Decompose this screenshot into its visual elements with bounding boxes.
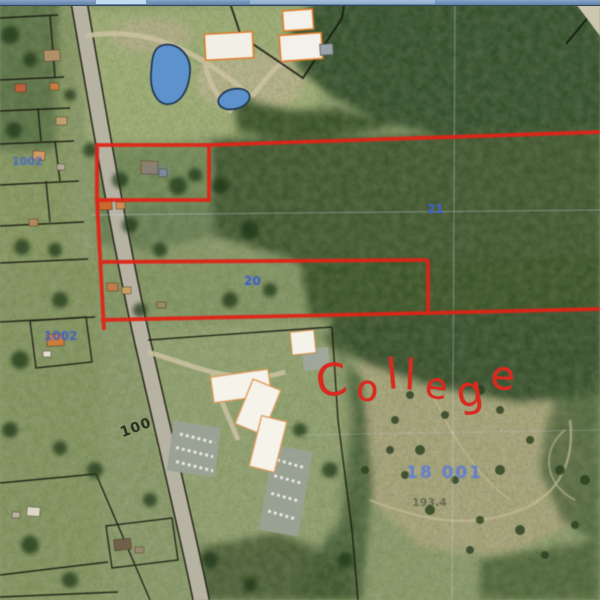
window-chrome-sliver <box>0 0 600 6</box>
window-tab-sliver[interactable] <box>95 0 147 4</box>
window-chrome-segment <box>250 0 435 4</box>
screenshot-root: 21 20 100 1002 1002 1001 18 001 193.4 Co… <box>0 0 600 600</box>
aerial-imagery-canvas <box>0 0 600 600</box>
parking-lot-west <box>167 421 221 477</box>
aerial-map-viewport[interactable]: 21 20 100 1002 1002 1001 18 001 193.4 Co… <box>0 0 600 600</box>
college-annex-building <box>290 330 316 355</box>
